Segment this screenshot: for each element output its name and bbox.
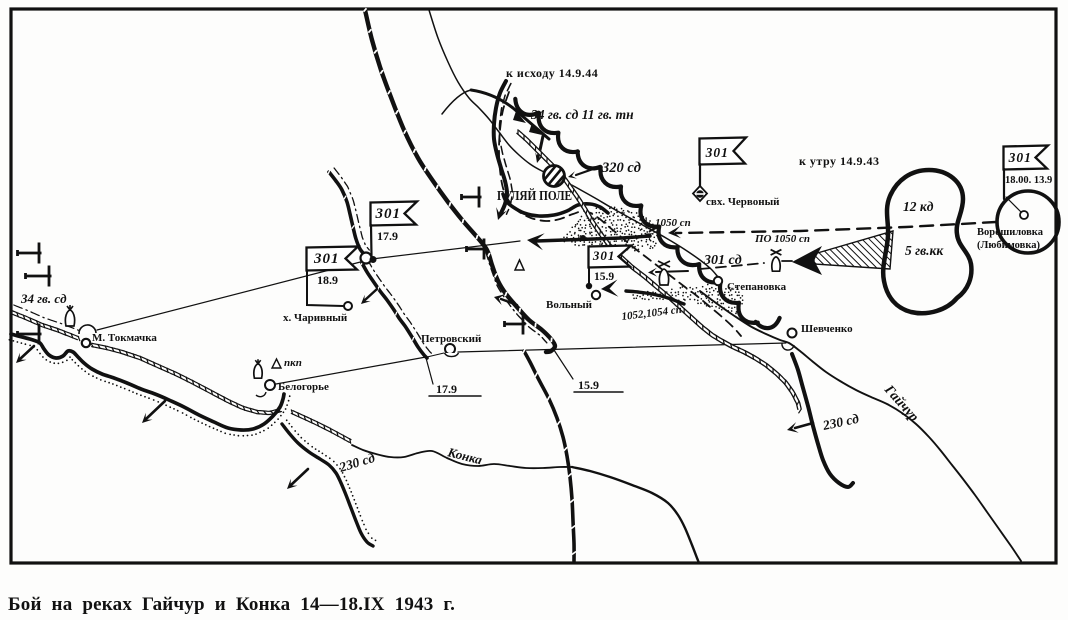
svg-text:301 сд: 301 сд [703,253,742,268]
svg-text:М. Токмачка: М. Токмачка [92,332,157,344]
svg-text:ГУЛЯЙ ПОЛЕ: ГУЛЯЙ ПОЛЕ [497,188,572,203]
svg-text:ПО 1050 сп: ПО 1050 сп [754,233,810,245]
svg-text:301: 301 [1008,150,1032,165]
svg-text:12 кд: 12 кд [903,199,934,214]
svg-text:Бой на реках Гайчур и Конка 14: Бой на реках Гайчур и Конка 14—18.IX 194… [8,594,455,615]
svg-text:301: 301 [374,206,401,222]
svg-text:к исходу 14.9.44: к исходу 14.9.44 [506,66,598,80]
svg-text:301: 301 [313,251,340,267]
svg-text:34 гв. сд: 34 гв. сд [20,291,67,306]
svg-text:18.9: 18.9 [317,273,338,287]
svg-text:Петровский: Петровский [421,333,482,345]
svg-text:(Любимовка): (Любимовка) [977,240,1040,251]
svg-text:18.00. 13.9: 18.00. 13.9 [1005,175,1052,186]
svg-text:Белогорье: Белогорье [278,381,329,393]
svg-text:1050 сп: 1050 сп [655,217,691,229]
svg-text:к утру 14.9.43: к утру 14.9.43 [799,154,879,168]
svg-text:17.9: 17.9 [436,382,457,396]
svg-text:Шевченко: Шевченко [801,323,853,335]
svg-text:Степановка: Степановка [727,281,787,293]
svg-text:320 сд: 320 сд [601,160,641,176]
svg-text:свх. Червоный: свх. Червоный [706,196,780,208]
svg-text:15.9: 15.9 [594,271,614,283]
svg-text:Ворошиловка: Ворошиловка [977,227,1044,238]
svg-text:х. Чаривный: х. Чаривный [283,312,348,324]
svg-text:5 гв.кк: 5 гв.кк [905,243,944,258]
svg-text:301: 301 [592,248,616,263]
svg-text:17.9: 17.9 [377,229,398,243]
svg-text:Вольный: Вольный [546,299,593,311]
svg-text:пкп: пкп [284,357,302,369]
svg-text:34 гв. сд 11 гв. тн: 34 гв. сд 11 гв. тн [530,107,634,122]
svg-text:15.9: 15.9 [578,378,599,392]
svg-text:301: 301 [705,145,729,160]
